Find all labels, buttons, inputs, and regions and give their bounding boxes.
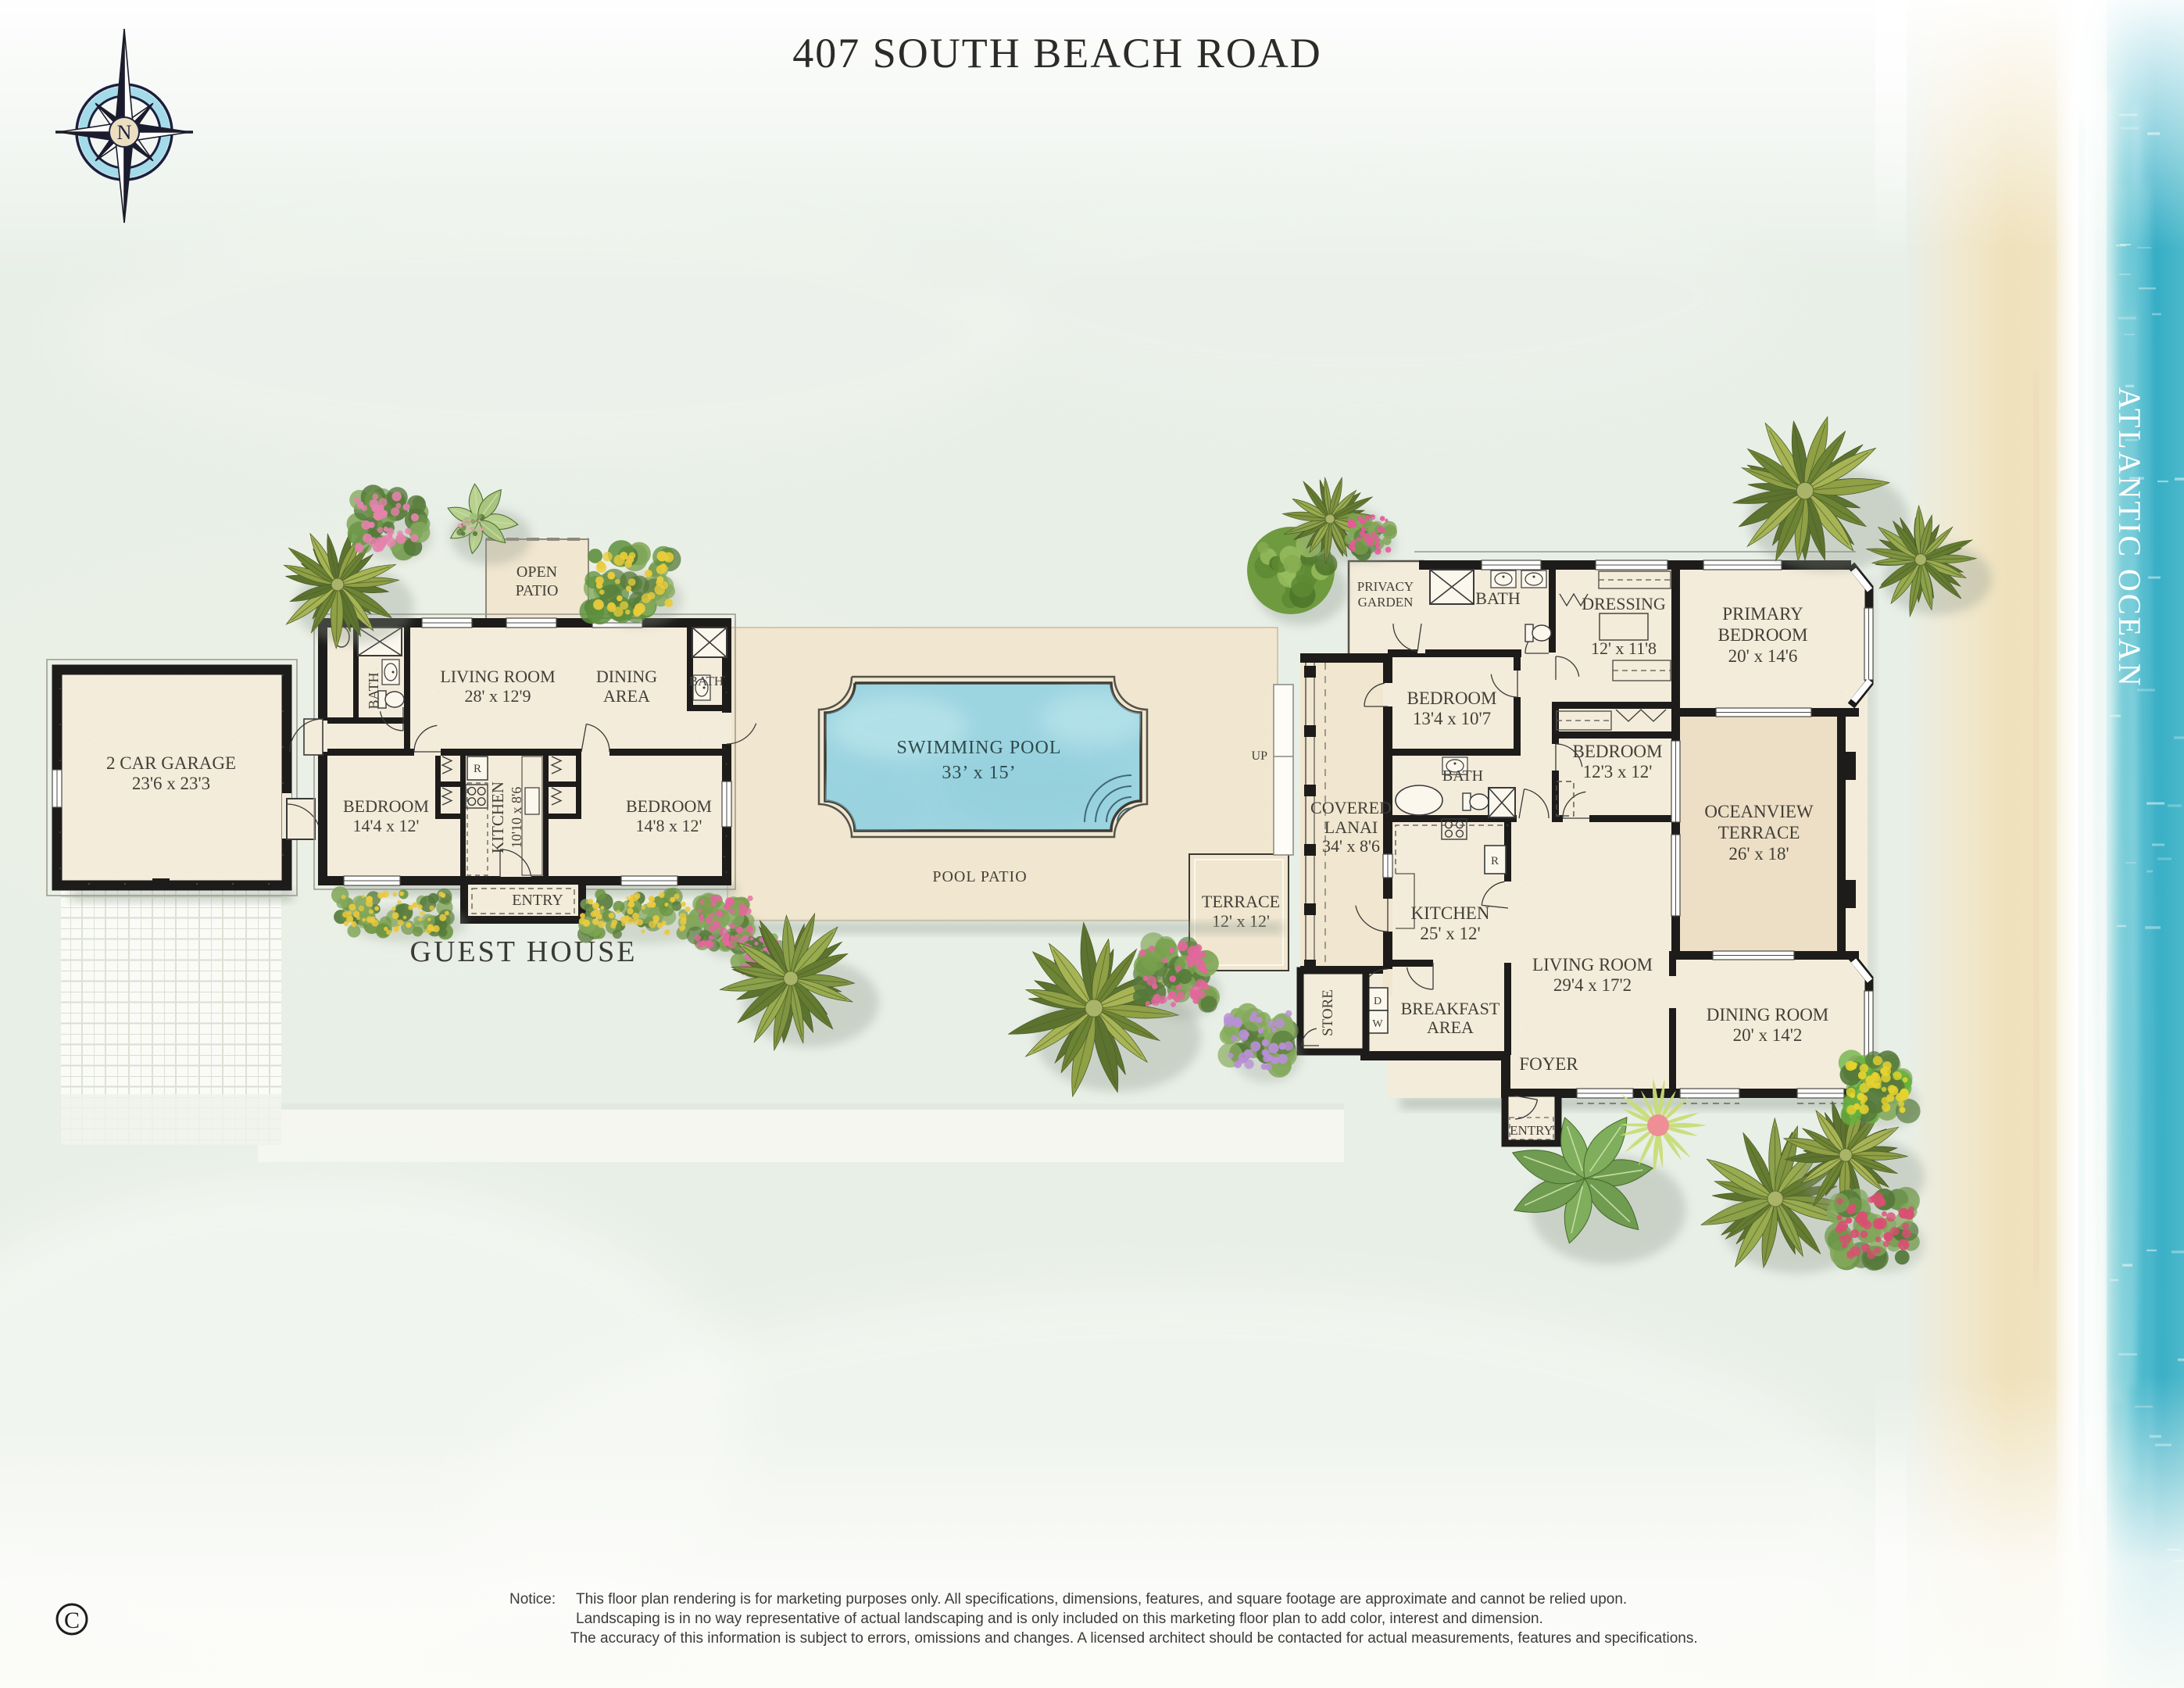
svg-text:BATH: BATH <box>1442 767 1483 785</box>
svg-text:R: R <box>1491 855 1499 867</box>
svg-text:OCEANVIEW: OCEANVIEW <box>1704 802 1814 821</box>
svg-text:W: W <box>1372 1018 1383 1030</box>
svg-text:TERRACE: TERRACE <box>1718 823 1800 842</box>
svg-text:GARDEN: GARDEN <box>1358 595 1414 610</box>
svg-text:BEDROOM: BEDROOM <box>1572 742 1662 761</box>
svg-text:UP: UP <box>1252 749 1268 763</box>
svg-text:28' x 12'9: 28' x 12'9 <box>465 686 531 706</box>
svg-text:10'10 x 8'6: 10'10 x 8'6 <box>509 787 524 849</box>
svg-text:Landscaping is in no way repre: Landscaping is in no way representative … <box>576 1611 1543 1627</box>
svg-text:BEDROOM: BEDROOM <box>1407 688 1496 708</box>
svg-text:COVERED: COVERED <box>1310 798 1392 817</box>
svg-text:13'4 x 10'7: 13'4 x 10'7 <box>1413 709 1491 728</box>
svg-text:BREAKFAST: BREAKFAST <box>1401 999 1500 1018</box>
svg-text:33’ x 15’: 33’ x 15’ <box>942 763 1016 783</box>
svg-text:29'4 x 17'2: 29'4 x 17'2 <box>1553 975 1632 995</box>
svg-text:12'3 x 12': 12'3 x 12' <box>1583 762 1653 781</box>
svg-text:BEDROOM: BEDROOM <box>343 796 429 816</box>
svg-text:LIVING ROOM: LIVING ROOM <box>440 667 555 686</box>
svg-text:This floor plan rendering is f: This floor plan rendering is for marketi… <box>576 1591 1627 1608</box>
svg-text:N: N <box>117 121 132 144</box>
svg-text:DRESSING: DRESSING <box>1582 594 1666 613</box>
svg-text:14'4 x 12': 14'4 x 12' <box>353 816 420 835</box>
svg-text:SWIMMING POOL: SWIMMING POOL <box>897 738 1062 758</box>
svg-text:34' x 8'6: 34' x 8'6 <box>1322 836 1380 856</box>
svg-text:ENTRY: ENTRY <box>512 892 563 909</box>
svg-text:ENTRY: ENTRY <box>1510 1123 1553 1138</box>
svg-text:25' x 12': 25' x 12' <box>1420 924 1480 943</box>
svg-text:STORE: STORE <box>1320 989 1336 1036</box>
svg-text:GUEST HOUSE: GUEST HOUSE <box>410 935 638 968</box>
svg-text:PRIMARY: PRIMARY <box>1722 604 1803 624</box>
svg-text:AREA: AREA <box>1427 1017 1474 1037</box>
svg-text:C: C <box>64 1608 80 1633</box>
svg-text:BEDROOM: BEDROOM <box>626 796 712 816</box>
svg-text:AREA: AREA <box>603 686 650 706</box>
svg-text:26' x 18': 26' x 18' <box>1728 844 1789 864</box>
svg-text:BATH: BATH <box>1475 588 1521 608</box>
svg-text:Notice:: Notice: <box>509 1591 556 1608</box>
svg-text:BATH: BATH <box>366 672 381 709</box>
svg-text:TERRACE: TERRACE <box>1202 892 1280 911</box>
svg-text:LIVING ROOM: LIVING ROOM <box>1532 955 1653 975</box>
svg-text:BEDROOM: BEDROOM <box>1718 625 1807 645</box>
svg-text:23'6 x 23'3: 23'6 x 23'3 <box>132 774 210 793</box>
svg-text:PATIO: PATIO <box>516 582 559 599</box>
svg-text:R: R <box>474 763 481 775</box>
svg-text:LANAI: LANAI <box>1324 817 1378 837</box>
svg-text:D: D <box>1374 996 1382 1007</box>
svg-text:The accuracy of this informati: The accuracy of this information is subj… <box>570 1630 1698 1647</box>
svg-text:14'8 x 12': 14'8 x 12' <box>636 816 702 835</box>
svg-text:POOL PATIO: POOL PATIO <box>932 868 1027 885</box>
svg-text:DINING: DINING <box>596 667 657 686</box>
svg-text:KITCHEN: KITCHEN <box>1411 903 1490 923</box>
svg-text:407 SOUTH BEACH ROAD: 407 SOUTH BEACH ROAD <box>792 30 1322 77</box>
svg-text:12' x 11'8: 12' x 11'8 <box>1591 638 1657 658</box>
svg-text:DINING ROOM: DINING ROOM <box>1707 1005 1829 1025</box>
svg-text:20' x 14'6: 20' x 14'6 <box>1728 646 1798 666</box>
svg-text:ATLANTIC OCEAN: ATLANTIC OCEAN <box>2112 387 2147 688</box>
svg-text:KITCHEN: KITCHEN <box>488 781 507 853</box>
svg-text:OPEN: OPEN <box>517 563 557 581</box>
svg-text:2 CAR GARAGE: 2 CAR GARAGE <box>106 753 236 773</box>
svg-text:PRIVACY: PRIVACY <box>1357 579 1414 594</box>
svg-text:20' x 14'2: 20' x 14'2 <box>1733 1025 1803 1045</box>
svg-text:FOYER: FOYER <box>1519 1054 1578 1074</box>
svg-text:BATH: BATH <box>689 674 724 688</box>
